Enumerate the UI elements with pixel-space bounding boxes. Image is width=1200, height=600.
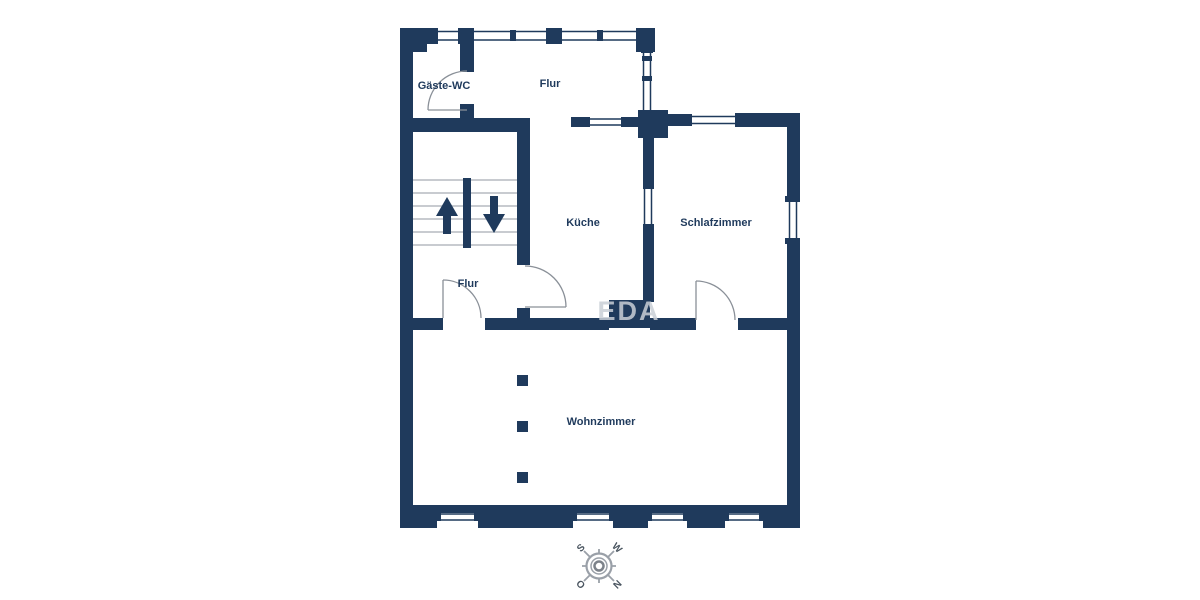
label-kueche: Küche xyxy=(566,217,600,229)
pillar-3 xyxy=(517,472,528,483)
wall-right-upper xyxy=(787,113,800,200)
wall-right-win-cap-top xyxy=(785,196,800,202)
wall-kitchen-win-cap-left xyxy=(571,117,590,127)
door-schlafzimmer xyxy=(696,281,735,320)
window-flur-right xyxy=(641,47,653,110)
window-top-2 xyxy=(474,30,546,41)
floorplan-drawing: Gäste-WC Flur Küche Schlafzimmer Flur Wo… xyxy=(0,0,1200,600)
window-top-1 xyxy=(438,32,458,41)
floorplan-canvas: Gäste-WC Flur Küche Schlafzimmer Flur Wo… xyxy=(0,0,1200,600)
windows xyxy=(437,30,797,521)
wall-divider-upper xyxy=(643,138,654,187)
wall-bedroom-top-left xyxy=(654,114,692,126)
wall-left xyxy=(400,28,413,528)
wall-wc-door-stub-upper xyxy=(460,30,474,72)
wall-mid-4 xyxy=(738,318,800,330)
watermark-text: EDA xyxy=(597,296,660,326)
wall-bottom-pier1 xyxy=(478,511,573,528)
compass-rose: S W O N xyxy=(575,541,625,590)
wall-wc-door-stub-lower xyxy=(460,104,474,122)
wall-stair-right xyxy=(517,128,530,265)
window-divider xyxy=(643,185,654,228)
window-bottom-2 xyxy=(573,512,613,521)
label-gaeste-wc: Gäste-WC xyxy=(418,80,471,92)
stair-up-arrow-icon xyxy=(436,197,458,234)
wall-top-corner-strip xyxy=(400,28,438,44)
wall-mid-1 xyxy=(400,318,443,330)
window-bedroom-right xyxy=(790,202,797,238)
label-schlafzimmer: Schlafzimmer xyxy=(680,217,752,229)
compass-hub xyxy=(595,562,604,571)
window-bottom-1 xyxy=(437,512,478,521)
window-top-3 xyxy=(562,30,636,41)
stair-down-arrow-icon xyxy=(483,196,505,233)
label-flur-top: Flur xyxy=(540,78,561,90)
wall-right-lower xyxy=(787,242,800,528)
window-bedroom-top xyxy=(692,117,735,124)
stair-divider xyxy=(463,178,471,248)
wall-bottom-pier2 xyxy=(613,511,648,528)
wall-kitchen-win-cap-right xyxy=(621,117,638,127)
wall-bottom-pier3 xyxy=(687,511,725,528)
window-bottom-3 xyxy=(648,512,687,521)
pillar-2 xyxy=(517,421,528,432)
wall-bottom-corner-left xyxy=(400,505,437,528)
staircase xyxy=(413,178,517,248)
window-kitchen-top xyxy=(590,119,621,125)
wall-mid-2 xyxy=(485,318,609,330)
pillar-1 xyxy=(517,375,528,386)
window-bottom-4 xyxy=(725,512,763,521)
wall-top-pier2 xyxy=(546,28,562,44)
label-wohnzimmer: Wohnzimmer xyxy=(567,416,637,428)
pillars xyxy=(517,375,528,483)
door-flur-kueche xyxy=(525,266,566,307)
label-flur-lower: Flur xyxy=(458,278,479,290)
wall-bottom-corner-right xyxy=(763,505,800,528)
wall-divider-lower xyxy=(643,226,654,302)
wall-bottom-strip xyxy=(400,505,800,513)
